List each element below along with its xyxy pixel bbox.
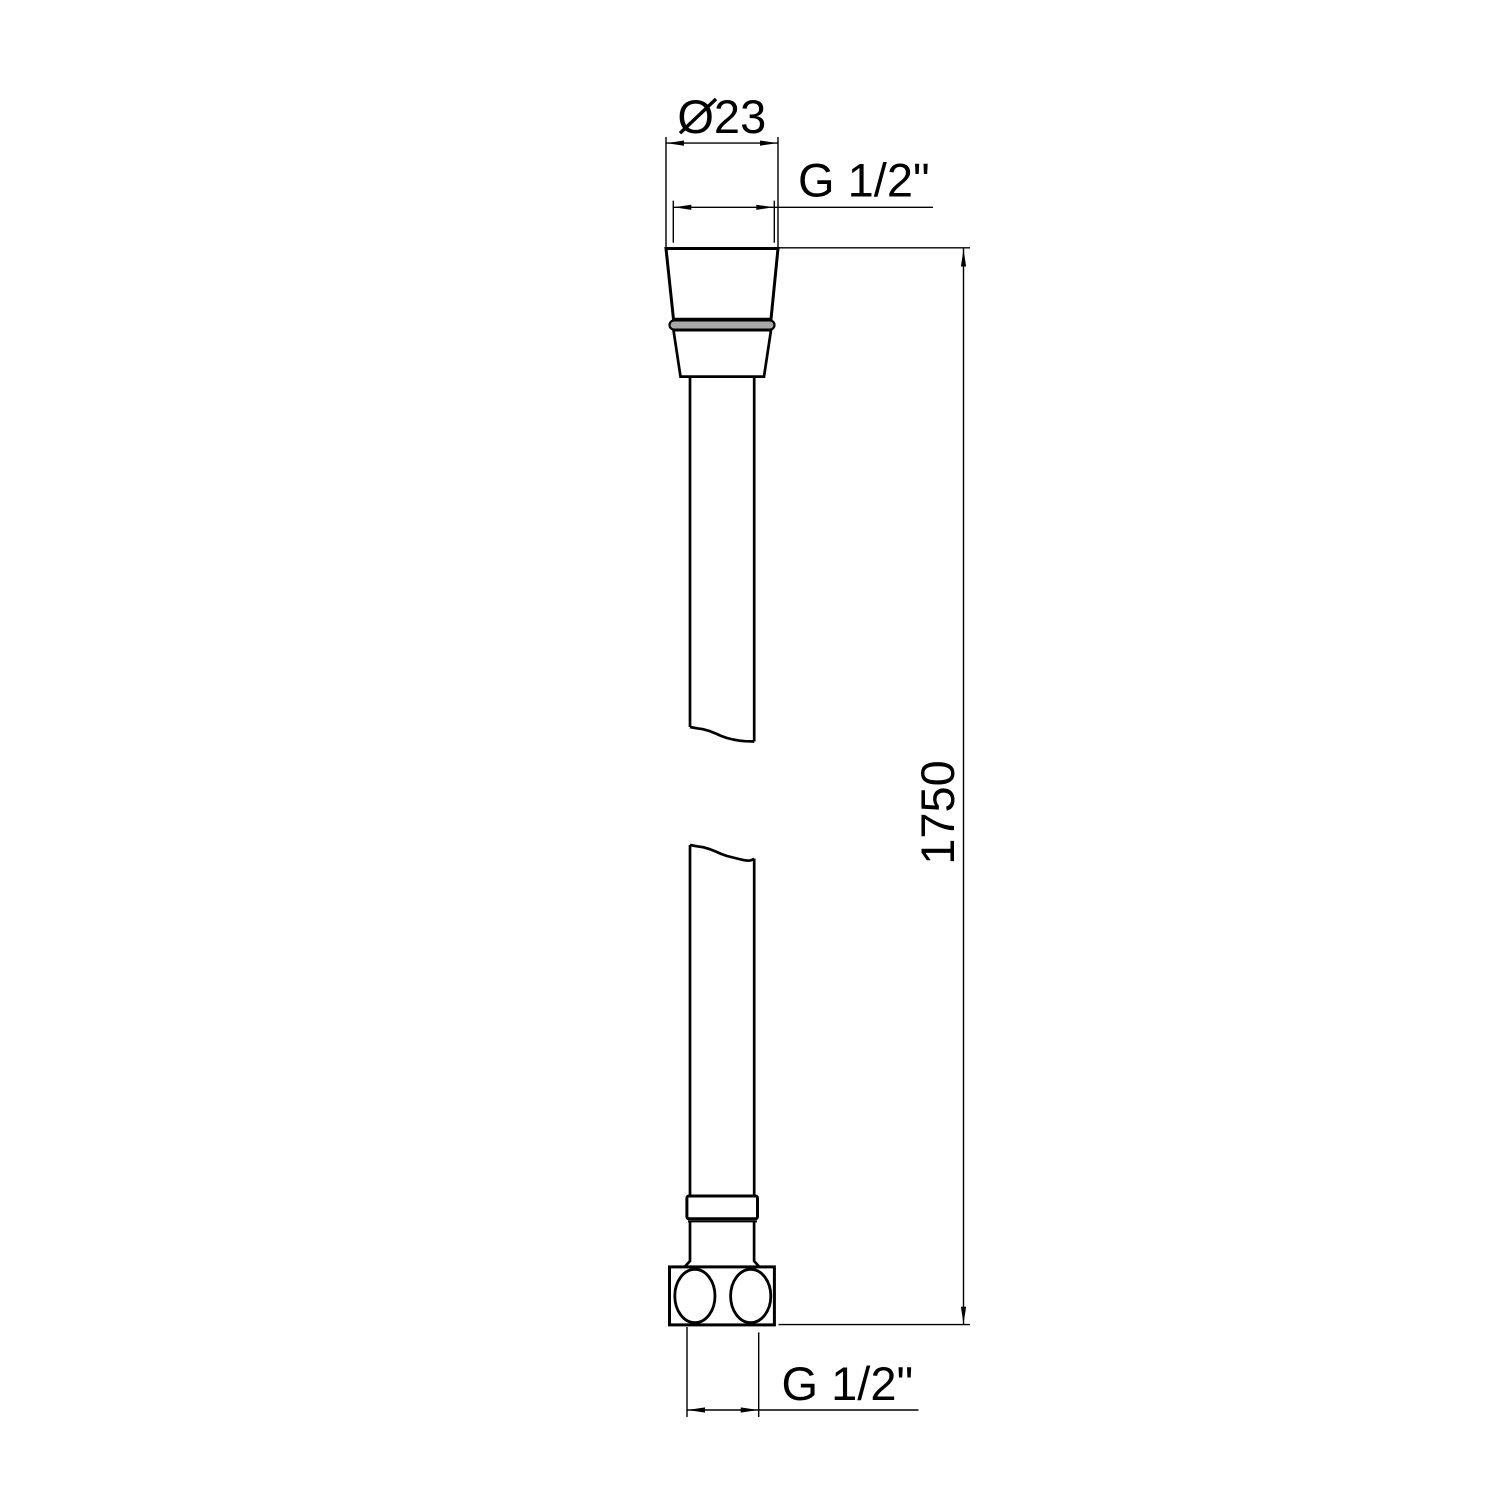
svg-text:1750: 1750 (911, 760, 964, 865)
svg-text:G 1/2": G 1/2" (782, 1357, 914, 1410)
svg-text:G 1/2": G 1/2" (798, 154, 930, 207)
svg-text:O23: O23 (677, 90, 766, 143)
